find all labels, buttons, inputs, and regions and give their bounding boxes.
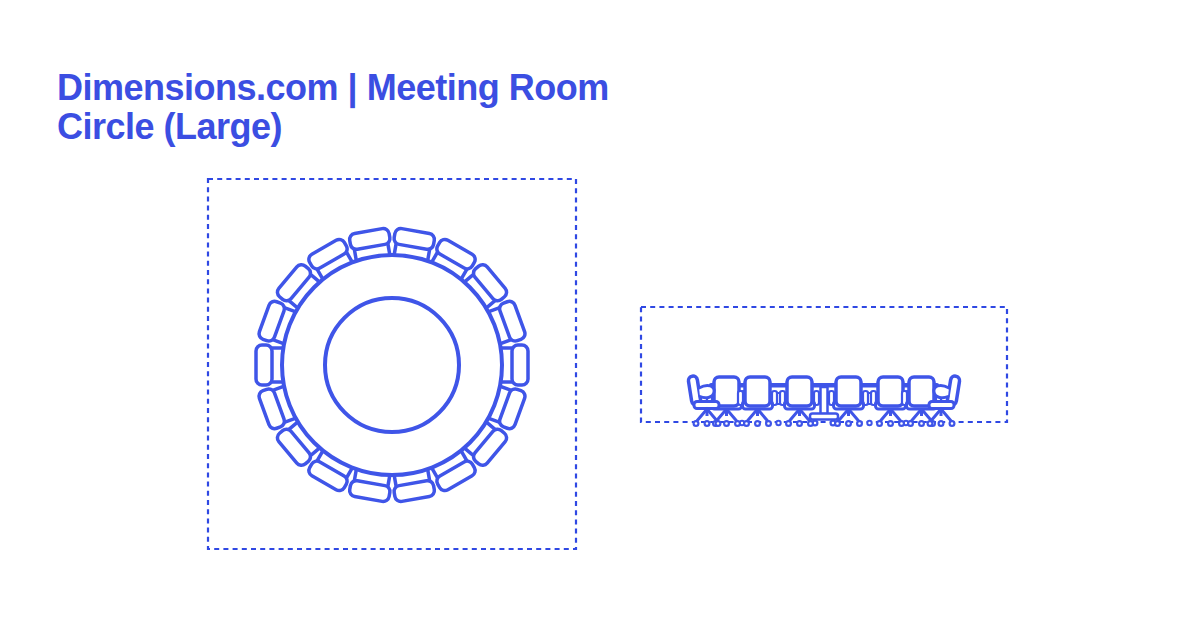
chair-backrest bbox=[836, 377, 861, 406]
plan-view-drawing bbox=[200, 171, 584, 559]
chair-caster bbox=[786, 421, 791, 426]
chair-caster bbox=[797, 421, 802, 426]
chair-elevation-back bbox=[738, 377, 777, 426]
far-chair-caster bbox=[776, 421, 780, 425]
table-pedestal bbox=[821, 387, 828, 414]
chair-caster bbox=[950, 421, 955, 426]
chair-caster bbox=[857, 421, 862, 426]
chair-caster bbox=[899, 421, 904, 426]
chair-caster bbox=[724, 421, 729, 426]
chair-arm-profile bbox=[699, 385, 714, 397]
chair-backrest bbox=[512, 345, 528, 385]
page-title-line-2: Circle (Large) bbox=[57, 107, 609, 146]
chair-caster bbox=[908, 421, 913, 426]
chair-caster bbox=[919, 421, 924, 426]
chair-arm-profile bbox=[934, 385, 949, 397]
chair-caster bbox=[766, 421, 771, 426]
far-chair-caster bbox=[867, 421, 871, 425]
chair-caster bbox=[928, 421, 933, 426]
table-outer-circle bbox=[282, 255, 502, 475]
chair-caster bbox=[716, 421, 721, 426]
chair-backrest bbox=[745, 377, 770, 406]
chair-caster bbox=[694, 421, 699, 426]
page-title: Dimensions.com | Meeting Room Circle (La… bbox=[57, 68, 609, 146]
chair-caster bbox=[835, 421, 840, 426]
elevation-view-drawing bbox=[628, 292, 1020, 440]
chair-caster bbox=[808, 421, 813, 426]
chair-caster bbox=[735, 421, 740, 426]
chair-caster bbox=[846, 421, 851, 426]
chair-caster bbox=[888, 421, 893, 426]
chair-caster bbox=[705, 421, 710, 426]
chair-caster bbox=[939, 421, 944, 426]
chair-caster bbox=[755, 421, 760, 426]
chair-backrest bbox=[256, 345, 272, 385]
chair-backrest bbox=[878, 377, 903, 406]
table-base bbox=[810, 414, 838, 420]
chair-caster bbox=[877, 421, 882, 426]
chair-backrest bbox=[787, 377, 812, 406]
chair-caster bbox=[744, 421, 749, 426]
page-title-line-1: Dimensions.com | Meeting Room bbox=[57, 68, 609, 107]
